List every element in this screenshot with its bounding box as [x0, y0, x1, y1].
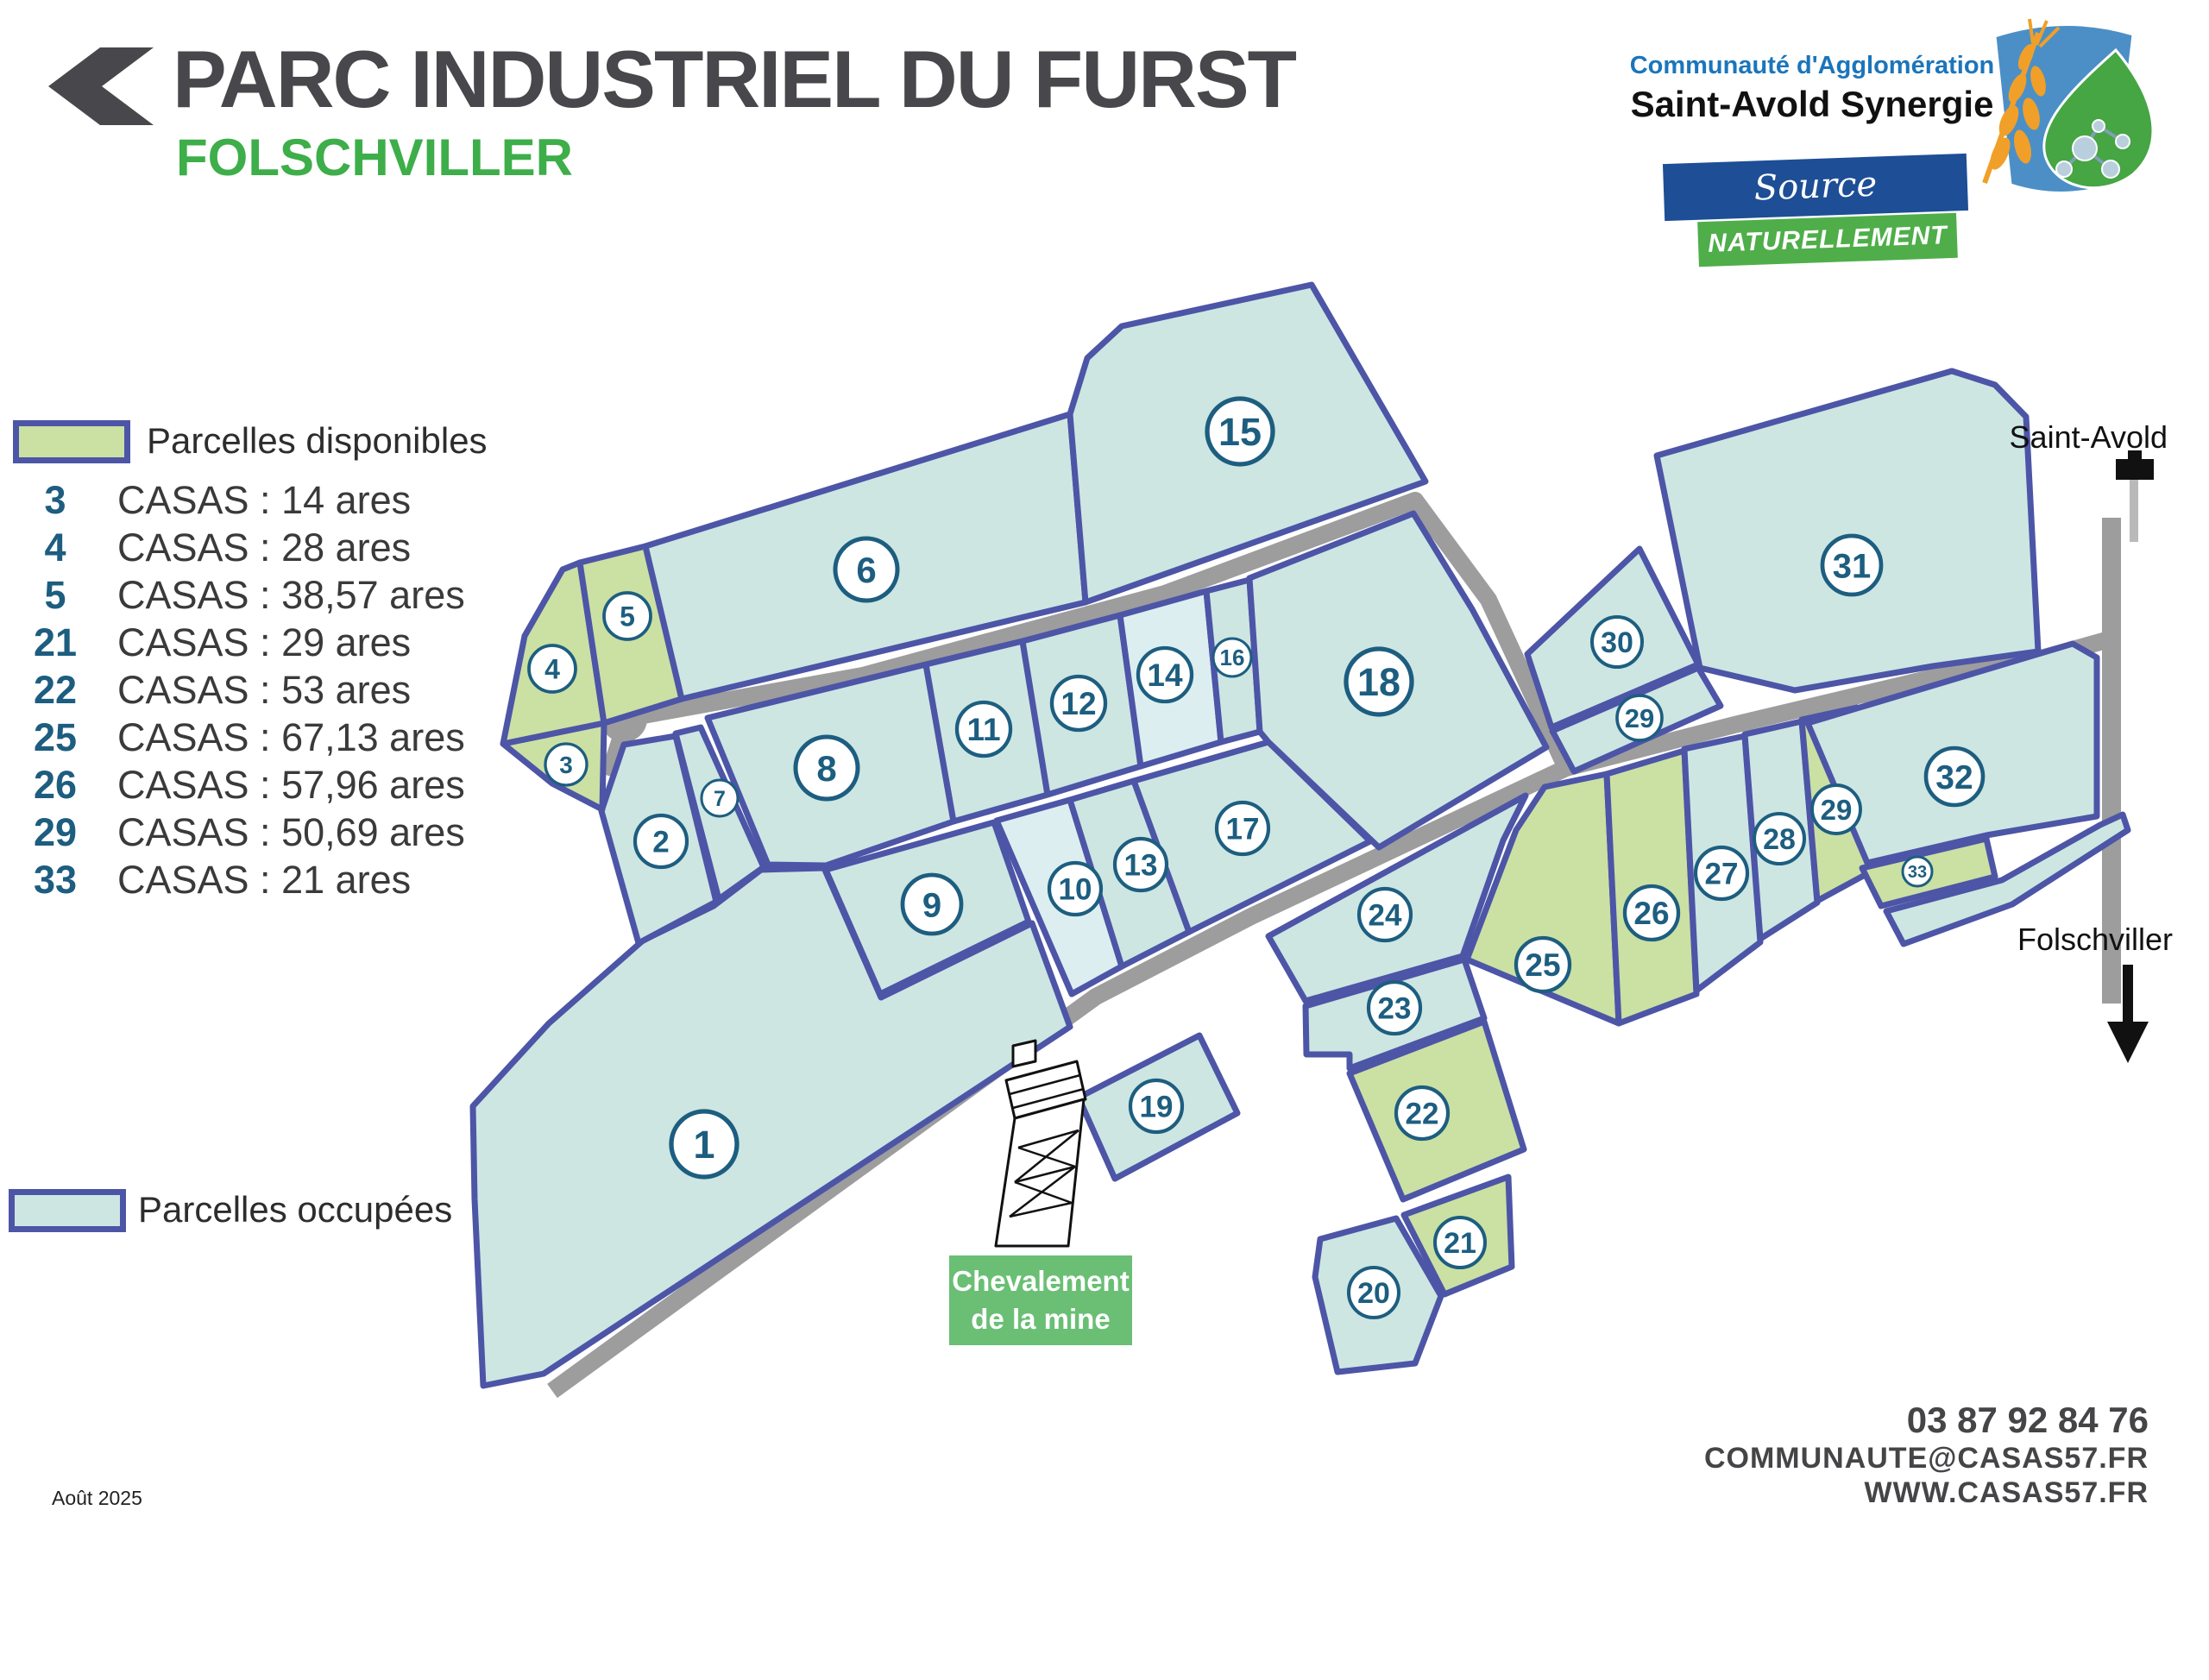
back-chevron-icon [48, 47, 154, 125]
saint-avold-label: Saint-Avold [2010, 419, 2168, 456]
svg-text:27: 27 [1705, 858, 1739, 891]
svg-text:16: 16 [1220, 645, 1245, 670]
available-item-26: 26CASAS : 57,96 ares [17, 761, 465, 809]
parcel-label-16: 16 [1213, 639, 1251, 676]
svg-text:33: 33 [1908, 863, 1927, 882]
page-title: PARC INDUSTRIEL DU FURST [173, 33, 1295, 126]
svg-text:7: 7 [714, 787, 726, 811]
parcel-label-15: 15 [1207, 399, 1273, 464]
parcel-label-10: 10 [1049, 863, 1101, 915]
available-item-number: 25 [17, 714, 93, 761]
svg-text:10: 10 [1059, 873, 1092, 907]
available-item-21: 21CASAS : 29 ares [17, 619, 465, 666]
svg-text:3: 3 [559, 752, 573, 778]
parcel-label-27: 27 [1696, 847, 1747, 899]
svg-text:32: 32 [1935, 759, 1973, 796]
svg-text:12: 12 [1060, 686, 1096, 721]
available-item-number: 26 [17, 761, 93, 809]
svg-text:21: 21 [1444, 1227, 1476, 1260]
svg-text:23: 23 [1378, 992, 1412, 1026]
svg-text:4: 4 [544, 653, 560, 684]
available-item-number: 5 [17, 571, 93, 619]
svg-text:8: 8 [816, 748, 836, 789]
svg-text:1: 1 [693, 1123, 714, 1167]
legend-available-label: Parcelles disponibles [147, 420, 488, 462]
parcel-label-21: 21 [1435, 1218, 1485, 1268]
logo-banner-slogan: Source d'initiatives, [1663, 154, 1968, 221]
available-item-number: 3 [17, 476, 93, 524]
available-item-desc: CASAS : 53 ares [117, 668, 411, 712]
contact-website: WWW.CASAS57.FR [1704, 1476, 2149, 1510]
folschviller-label: Folschviller [2017, 922, 2173, 958]
available-item-4: 4CASAS : 28 ares [17, 524, 465, 571]
parcel-label-29b: 29 [1617, 695, 1662, 740]
svg-text:9: 9 [922, 886, 941, 924]
available-item-29: 29CASAS : 50,69 ares [17, 809, 465, 856]
parcel-label-29a: 29 [1812, 785, 1860, 834]
parcel-label-3: 3 [545, 744, 587, 785]
available-item-desc: CASAS : 67,13 ares [117, 715, 465, 759]
parcel-label-22: 22 [1396, 1087, 1448, 1139]
svg-text:28: 28 [1763, 823, 1796, 856]
svg-text:11: 11 [966, 712, 1000, 747]
parcel-label-20: 20 [1349, 1268, 1399, 1318]
logo-graphic [1985, 19, 2153, 193]
logo-block: Communauté d'Agglomération Saint-Avold S… [1622, 52, 2002, 125]
parcel-label-11: 11 [957, 702, 1010, 756]
parcels-layer [473, 285, 2128, 1386]
svg-text:25: 25 [1525, 947, 1560, 983]
legend-occupied-swatch [9, 1189, 126, 1232]
parcel-label-32: 32 [1926, 748, 1983, 805]
logo-community-label: Communauté d'Agglomération [1622, 52, 2002, 80]
available-item-5: 5CASAS : 38,57 ares [17, 571, 465, 619]
svg-text:26: 26 [1633, 896, 1669, 931]
svg-text:2: 2 [652, 826, 669, 859]
parcel-label-33: 33 [1903, 857, 1932, 886]
date-label: Août 2025 [52, 1487, 142, 1510]
parcel-label-5: 5 [604, 593, 651, 639]
available-item-3: 3CASAS : 14 ares [17, 476, 465, 524]
svg-text:30: 30 [1601, 626, 1633, 659]
legend-occupied-label: Parcelles occupées [138, 1189, 452, 1230]
parcel-label-14: 14 [1138, 648, 1192, 702]
available-item-number: 33 [17, 856, 93, 903]
available-item-desc: CASAS : 38,57 ares [117, 573, 465, 617]
svg-text:14: 14 [1147, 658, 1183, 693]
svg-text:19: 19 [1140, 1091, 1174, 1124]
available-item-number: 4 [17, 524, 93, 571]
contact-email: COMMUNAUTE@CASAS57.FR [1704, 1441, 2149, 1476]
parcel-label-13: 13 [1115, 839, 1167, 890]
parcel-31 [1657, 371, 2038, 690]
logo-name-label: Saint-Avold Synergie [1622, 84, 2002, 125]
available-item-33: 33CASAS : 21 ares [17, 856, 465, 903]
parcel-label-4: 4 [529, 645, 576, 692]
available-item-desc: CASAS : 21 ares [117, 858, 411, 902]
available-item-number: 21 [17, 619, 93, 666]
parcel-label-31: 31 [1822, 536, 1881, 595]
parcel-label-24: 24 [1359, 889, 1411, 941]
page-subtitle: FOLSCHVILLER [176, 128, 573, 187]
parcel-label-2: 2 [635, 815, 687, 867]
parcel-label-7: 7 [702, 780, 738, 816]
chevalement-line1: Chevalement [949, 1262, 1132, 1300]
logo-banner-naturellement: NATURELLEMENT [1697, 213, 1958, 267]
svg-text:29: 29 [1821, 794, 1853, 826]
legend-available-swatch [13, 420, 130, 463]
svg-text:24: 24 [1369, 899, 1402, 933]
svg-text:31: 31 [1833, 547, 1872, 585]
parcel-label-12: 12 [1052, 676, 1105, 730]
available-item-22: 22CASAS : 53 ares [17, 666, 465, 714]
parcel-label-18: 18 [1346, 649, 1412, 714]
svg-text:17: 17 [1226, 813, 1260, 846]
svg-text:13: 13 [1124, 849, 1158, 883]
available-item-desc: CASAS : 50,69 ares [117, 810, 465, 854]
parcel-label-17: 17 [1217, 802, 1268, 854]
available-item-desc: CASAS : 14 ares [117, 478, 411, 522]
parcel-label-28: 28 [1754, 814, 1804, 864]
svg-text:20: 20 [1357, 1277, 1390, 1310]
parcel-label-19: 19 [1130, 1080, 1182, 1132]
svg-text:18: 18 [1357, 660, 1400, 704]
svg-text:22: 22 [1406, 1098, 1439, 1131]
chevalement-line2: de la mine [949, 1300, 1132, 1338]
mine-headframe-drawing [996, 1041, 1086, 1246]
contact-phone: 03 87 92 84 76 [1704, 1400, 2149, 1441]
chevalement-label-box: Chevalement de la mine [949, 1255, 1132, 1345]
svg-text:6: 6 [856, 550, 876, 590]
available-parcels-list: 3CASAS : 14 ares4CASAS : 28 ares5CASAS :… [17, 476, 465, 903]
available-item-25: 25CASAS : 67,13 ares [17, 714, 465, 761]
parcel-label-6: 6 [835, 538, 897, 601]
contact-block: 03 87 92 84 76 COMMUNAUTE@CASAS57.FR WWW… [1704, 1400, 2149, 1510]
available-item-number: 22 [17, 666, 93, 714]
available-item-desc: CASAS : 28 ares [117, 525, 411, 569]
available-item-desc: CASAS : 29 ares [117, 620, 411, 664]
parcel-label-8: 8 [796, 737, 858, 799]
available-item-number: 29 [17, 809, 93, 856]
parcel-label-30: 30 [1592, 617, 1642, 667]
svg-text:29: 29 [1625, 703, 1654, 733]
poster: 1234567891011121314151617181920212223242… [0, 0, 2209, 1680]
signpost-icon [2116, 450, 2154, 542]
svg-text:5: 5 [620, 601, 635, 632]
parcel-label-1: 1 [671, 1111, 737, 1177]
svg-text:15: 15 [1218, 410, 1262, 454]
parcel-label-25: 25 [1516, 938, 1570, 991]
parcel-label-26: 26 [1625, 886, 1678, 940]
available-item-desc: CASAS : 57,96 ares [117, 763, 465, 807]
parcel-label-23: 23 [1369, 982, 1420, 1034]
parcel-label-9: 9 [903, 875, 961, 934]
